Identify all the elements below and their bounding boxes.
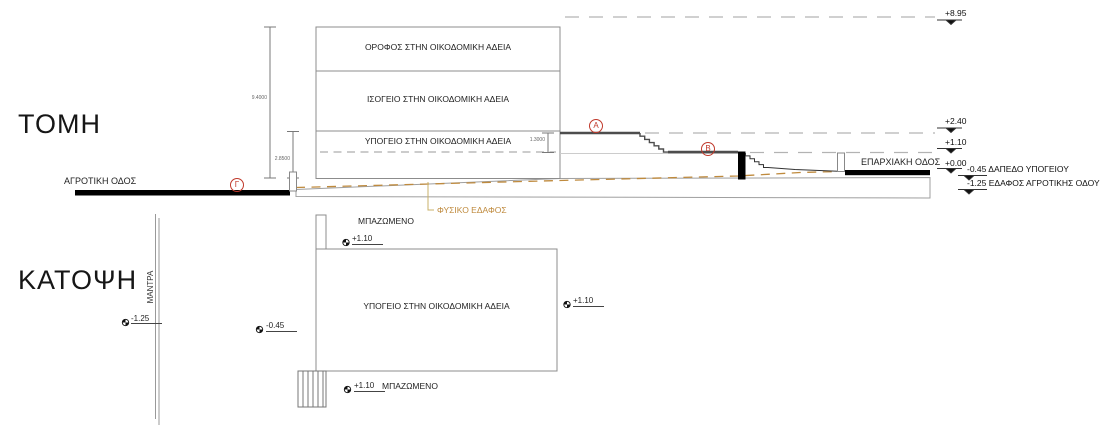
road-right-label: ΕΠΑΡΧΙΑΚΗ ΟΔΟΣ: [861, 158, 940, 168]
note-rural-road-text: ΕΔΑΦΟΣ ΑΓΡΟΤΙΚΗΣ ΟΔΟΥ: [989, 178, 1100, 188]
note-basement-floor: -0.45 ΔΑΠΕΔΟ ΥΠΟΓΕΙΟΥ: [967, 165, 1069, 174]
dimension-line-basement: [287, 132, 299, 179]
road-left-label: ΑΓΡΟΤΙΚΗ ΟΔΟΣ: [64, 177, 136, 187]
dim-retaining-step: 1.3000: [524, 138, 545, 144]
spot-symbol-left: [256, 326, 262, 332]
note-rural-road-value: -1.25: [967, 178, 986, 188]
ground-band: [296, 178, 930, 199]
level-road: +0.00: [945, 159, 967, 168]
section-title: ΤΟΜΗ: [18, 110, 101, 140]
spot-symbol-right: [564, 301, 570, 307]
left-post: [290, 172, 297, 191]
plan-room-label: ΥΠΟΓΕΙΟ ΣΤΗΝ ΟΙΚΟΔΟΜΙΚΗ ΑΔΕΙΑ: [316, 302, 557, 311]
fence-label: ΜΑΝΤΡΑ: [147, 265, 157, 309]
point-marker-a: A: [589, 119, 603, 133]
spot-symbol-top: [343, 239, 349, 245]
note-rural-road-ground: -1.25 ΕΔΑΦΟΣ ΑΓΡΟΤΙΚΗΣ ΟΔΟΥ: [967, 179, 1100, 188]
dim-basement-height: 2.8500: [261, 157, 290, 163]
spot-symbol-fence: [122, 319, 128, 325]
floor-label-orofos: ΟΡΟΦΟΣ ΣΤΗΝ ΟΙΚΟΔΟΜΙΚΗ ΑΔΕΙΑ: [316, 43, 560, 52]
floor-label-isogeio: ΙΣΟΓΕΙΟ ΣΤΗΝ ΟΙΚΟΔΟΜΙΚΗ ΑΔΕΙΑ: [316, 95, 560, 104]
spot-value-left: -0.45: [266, 322, 297, 332]
spot-value-right: +1.10: [573, 297, 604, 307]
architectural-drawing: ΤΟΜΗ ΚΑΤΟΨΗ ΟΡΟΦΟΣ ΣΤΗΝ ΟΙΚΟΔΟΜΙΚΗ ΑΔΕΙΑ…: [0, 0, 1100, 443]
plan-wall-stub: [316, 215, 326, 249]
drawing-linework: [0, 0, 1100, 443]
right-post: [838, 153, 845, 172]
fill-label-top: ΜΠΑΖΩΜΕΝΟ: [358, 217, 414, 226]
plan-title: ΚΑΤΟΨΗ: [18, 266, 137, 296]
dim-overall-height: 9.4000: [238, 96, 267, 102]
level-upper: +2.40: [945, 117, 967, 126]
point-marker-b: B: [701, 142, 715, 156]
steps-b: [746, 153, 839, 171]
level-top: +8.95: [945, 9, 967, 18]
spot-symbol-bottom: [344, 386, 350, 392]
fill-label-bottom: ΜΠΑΖΩΜΕΝΟ: [382, 382, 438, 391]
rural-road-surface: [75, 190, 290, 196]
steps-a: [640, 133, 668, 152]
spot-value-fence: -1.25: [131, 315, 162, 325]
spot-value-bottom: +1.10: [354, 382, 385, 392]
natural-ground-label: ΦΥΣΙΚΟ ΕΔΑΦΟΣ: [437, 206, 507, 215]
note-basement-floor-text: ΔΑΠΕΔΟ ΥΠΟΓΕΙΟΥ: [988, 164, 1069, 174]
level-middle: +1.10: [945, 138, 967, 147]
plan-hatched-area: [298, 371, 326, 407]
note-basement-floor-value: -0.45: [967, 164, 986, 174]
retaining-wall-section: [738, 152, 746, 180]
spot-value-top: +1.10: [352, 235, 383, 245]
point-marker-c: Γ: [230, 178, 244, 192]
provincial-road-surface: [845, 170, 930, 175]
